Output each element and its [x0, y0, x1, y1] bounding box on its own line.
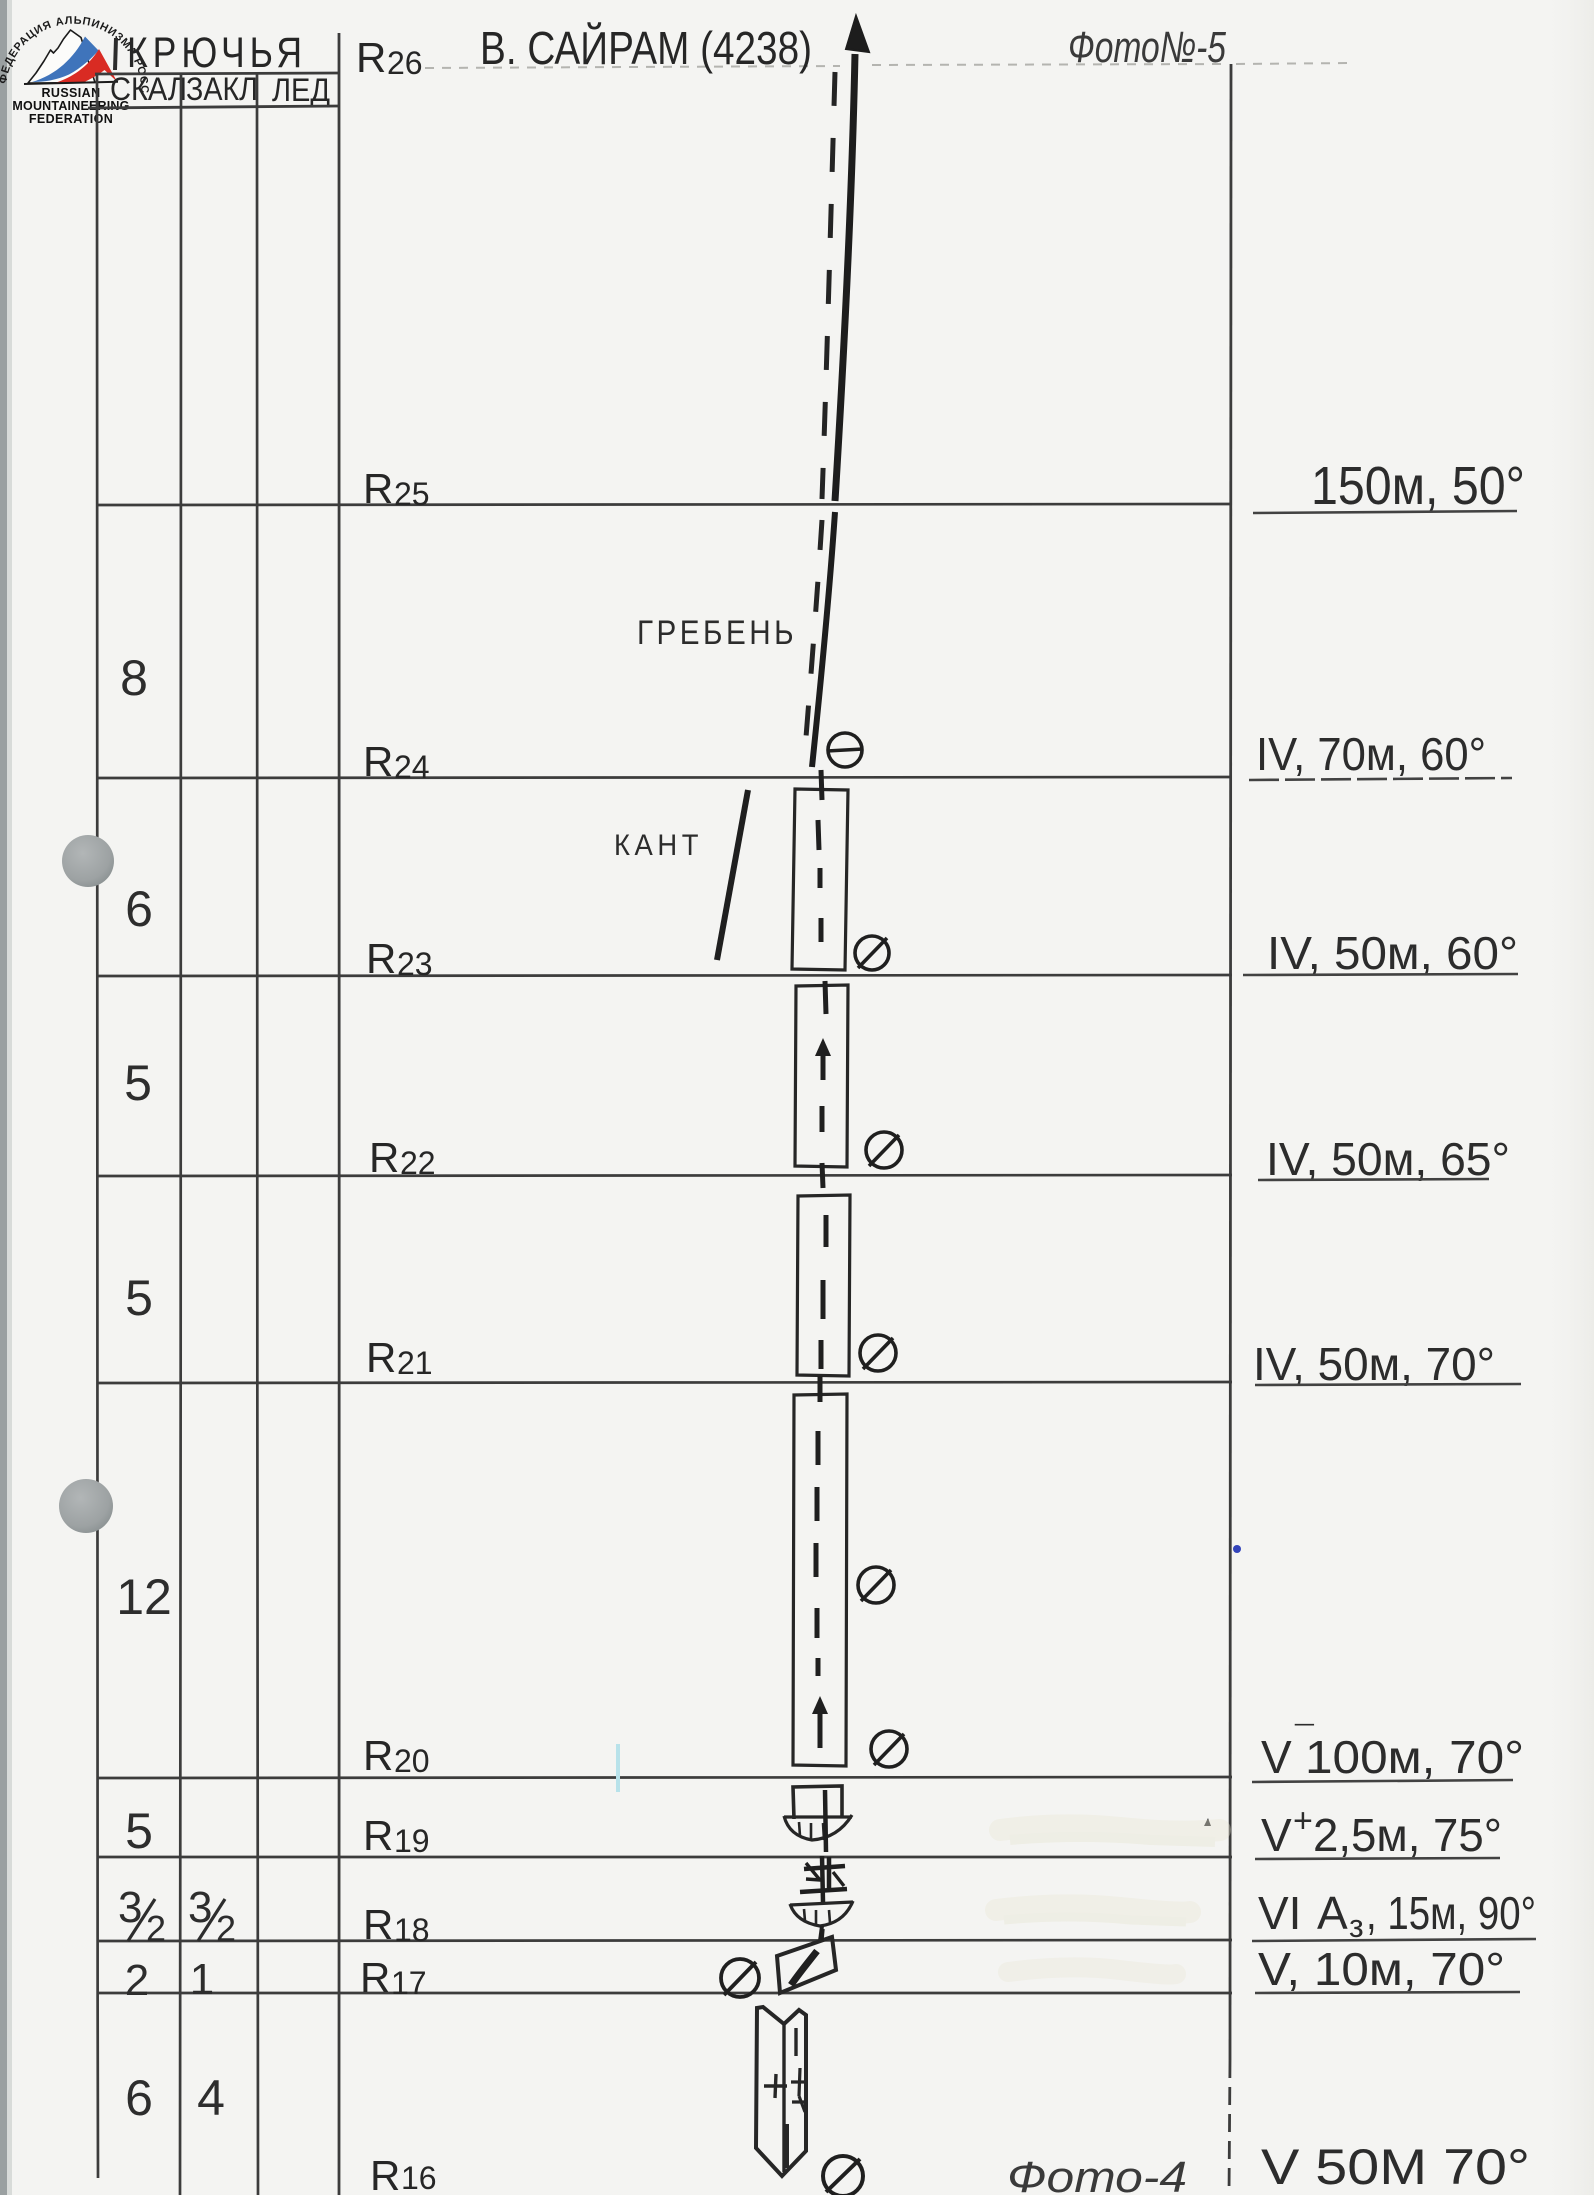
svg-text:5: 5 [125, 1803, 153, 1859]
svg-text:2: 2 [146, 1908, 166, 1949]
svg-text:18: 18 [394, 1912, 430, 1948]
svg-text:ЛЕД: ЛЕД [272, 72, 330, 108]
svg-text:V, 10м, 70°: V, 10м, 70° [1258, 1943, 1505, 1995]
svg-text:5: 5 [125, 1270, 153, 1326]
svg-text:IV, 70м, 60°: IV, 70м, 60° [1256, 728, 1486, 780]
svg-text:12: 12 [116, 1569, 172, 1625]
svg-text:СКАЛ: СКАЛ [110, 71, 187, 107]
svg-text:R: R [363, 738, 393, 785]
svg-text:V: V [1261, 1731, 1292, 1783]
svg-text:23: 23 [397, 946, 433, 982]
svg-text:16: 16 [401, 2160, 437, 2195]
svg-text:R: R [356, 34, 386, 81]
svg-text:1: 1 [190, 1955, 214, 2004]
svg-text:R: R [363, 465, 393, 512]
svg-text:20: 20 [394, 1743, 430, 1779]
svg-text:IV, 50м, 70°: IV, 50м, 70° [1253, 1338, 1495, 1390]
svg-text:26: 26 [387, 45, 423, 81]
svg-text:19: 19 [394, 1823, 430, 1859]
svg-text:ГРЕБЕНЬ: ГРЕБЕНЬ [637, 614, 797, 652]
svg-text:ЗАКЛ: ЗАКЛ [186, 71, 258, 107]
svg-text:В. САЙРАМ (4238): В. САЙРАМ (4238) [480, 22, 812, 74]
svg-text:R: R [370, 2152, 400, 2195]
svg-text:25: 25 [394, 476, 430, 512]
svg-text:КРЮЧЬЯ: КРЮЧЬЯ [127, 29, 307, 77]
svg-text:R: R [369, 1134, 399, 1181]
svg-text:V 50М 70°: V 50М 70° [1261, 2139, 1530, 2195]
svg-text:, 15м, 90°: , 15м, 90° [1366, 1887, 1536, 1939]
svg-text:R: R [363, 1812, 393, 1859]
svg-text:А: А [1317, 1887, 1348, 1939]
svg-text:17: 17 [391, 1965, 427, 2001]
svg-text:Фото-4: Фото-4 [1007, 2153, 1187, 2195]
svg-text:R: R [366, 935, 396, 982]
svg-text:VI: VI [1258, 1887, 1301, 1939]
svg-text:150м, 50°: 150м, 50° [1311, 456, 1525, 516]
svg-text:100м, 70°: 100м, 70° [1305, 1731, 1524, 1783]
svg-text:КАНТ: КАНТ [614, 829, 703, 862]
svg-text:21: 21 [397, 1345, 433, 1381]
svg-text:з: з [1349, 1908, 1364, 1944]
svg-text:2: 2 [125, 1956, 149, 2005]
svg-text:R: R [366, 1334, 396, 1381]
svg-text:V: V [1261, 1809, 1292, 1861]
svg-text:R: R [363, 1732, 393, 1779]
svg-text:IV, 50м, 60°: IV, 50м, 60° [1267, 927, 1518, 979]
svg-text:8: 8 [120, 650, 148, 706]
svg-text:6: 6 [125, 2070, 153, 2126]
svg-text:IV, 50м, 65°: IV, 50м, 65° [1266, 1133, 1510, 1185]
svg-text:FEDERATION: FEDERATION [29, 112, 113, 126]
svg-text:RUSSIAN: RUSSIAN [41, 86, 100, 100]
svg-text:5: 5 [124, 1055, 152, 1111]
svg-text:4: 4 [197, 2070, 225, 2126]
svg-text:+: + [1293, 1802, 1313, 1840]
svg-text:6: 6 [125, 881, 153, 937]
svg-text:2,5м, 75°: 2,5м, 75° [1313, 1809, 1502, 1861]
svg-text:Фото№-5: Фото№-5 [1068, 23, 1226, 72]
svg-text:24: 24 [394, 749, 430, 785]
svg-text:R: R [363, 1901, 393, 1948]
svg-text:2: 2 [216, 1908, 236, 1949]
svg-text:22: 22 [400, 1145, 436, 1181]
svg-text:R: R [360, 1954, 390, 2001]
